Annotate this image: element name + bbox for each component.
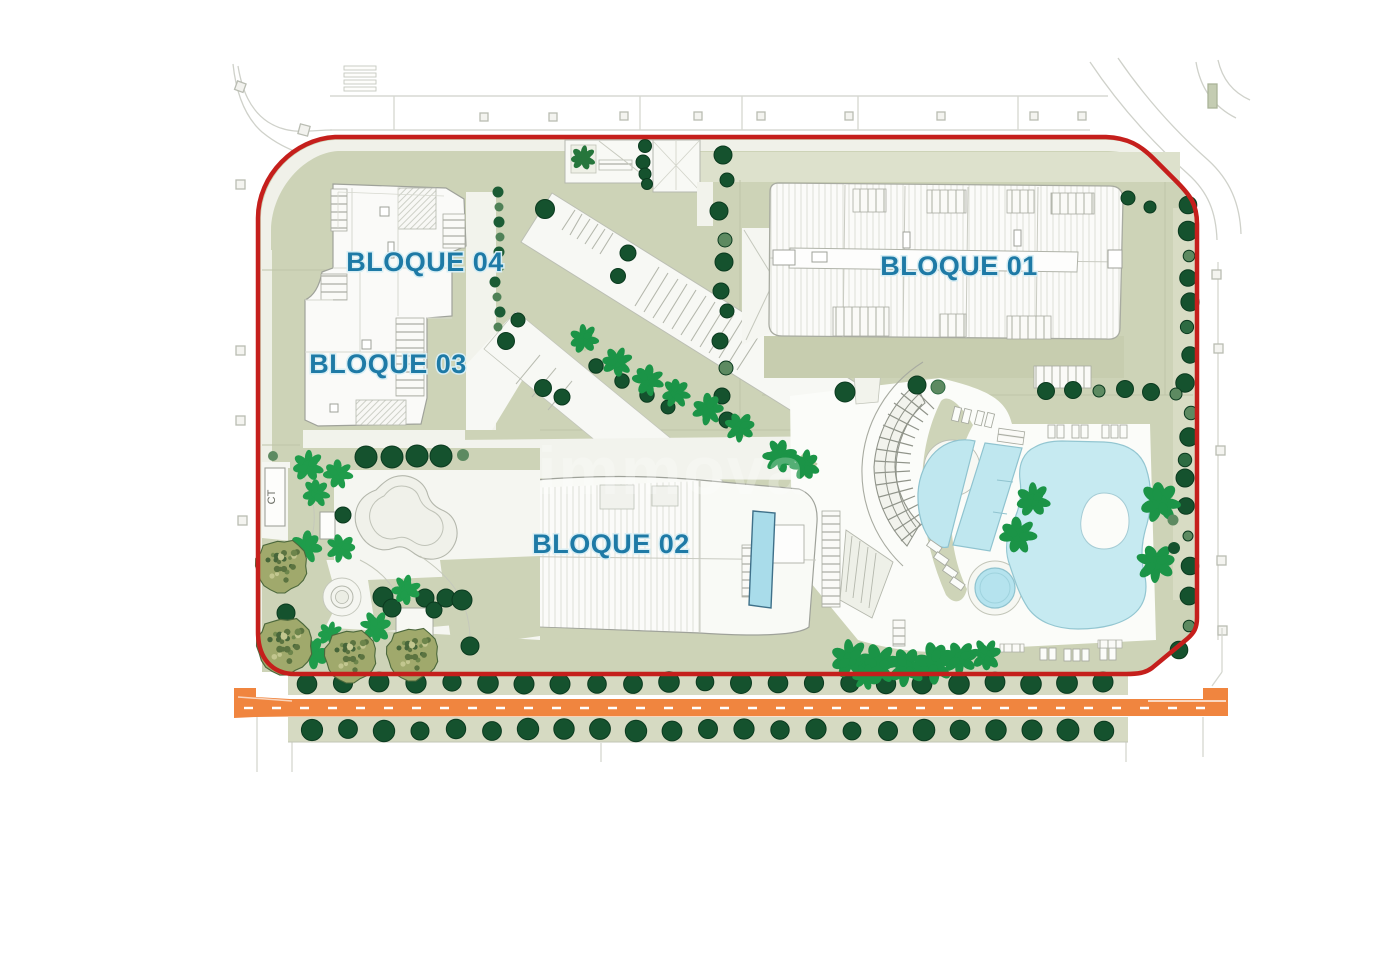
svg-text:BLOQUE 03: BLOQUE 03 xyxy=(309,349,467,379)
svg-text:BLOQUE 04: BLOQUE 04 xyxy=(346,247,504,277)
svg-text:BLOQUE 02: BLOQUE 02 xyxy=(532,529,690,559)
svg-text:CT: CT xyxy=(266,489,278,504)
svg-text:immova: immova xyxy=(538,433,807,509)
svg-text:BLOQUE 01: BLOQUE 01 xyxy=(880,251,1038,281)
